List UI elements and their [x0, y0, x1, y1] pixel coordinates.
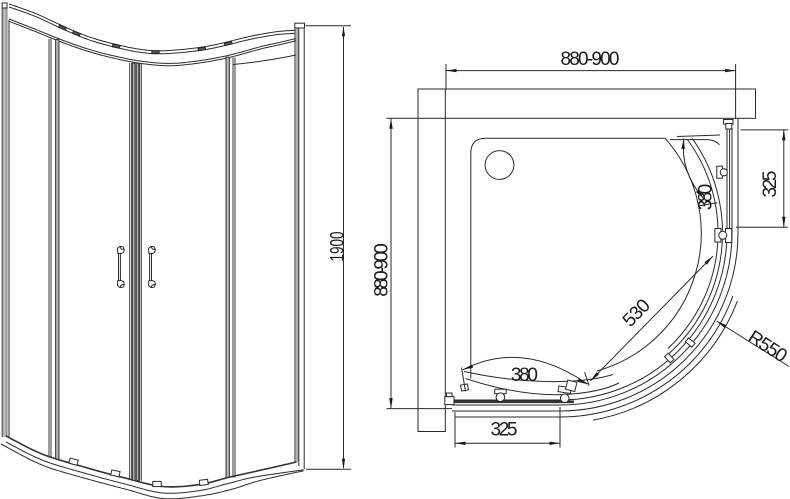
svg-text:R550: R550	[744, 327, 790, 367]
svg-text:880-900: 880-900	[561, 49, 620, 70]
svg-text:325: 325	[760, 171, 781, 198]
svg-text:530: 530	[619, 295, 655, 331]
svg-text:880-900: 880-900	[372, 243, 393, 297]
svg-text:380: 380	[696, 184, 717, 211]
svg-text:1900: 1900	[328, 232, 349, 262]
svg-text:325: 325	[491, 420, 518, 441]
svg-text:380: 380	[511, 365, 538, 386]
